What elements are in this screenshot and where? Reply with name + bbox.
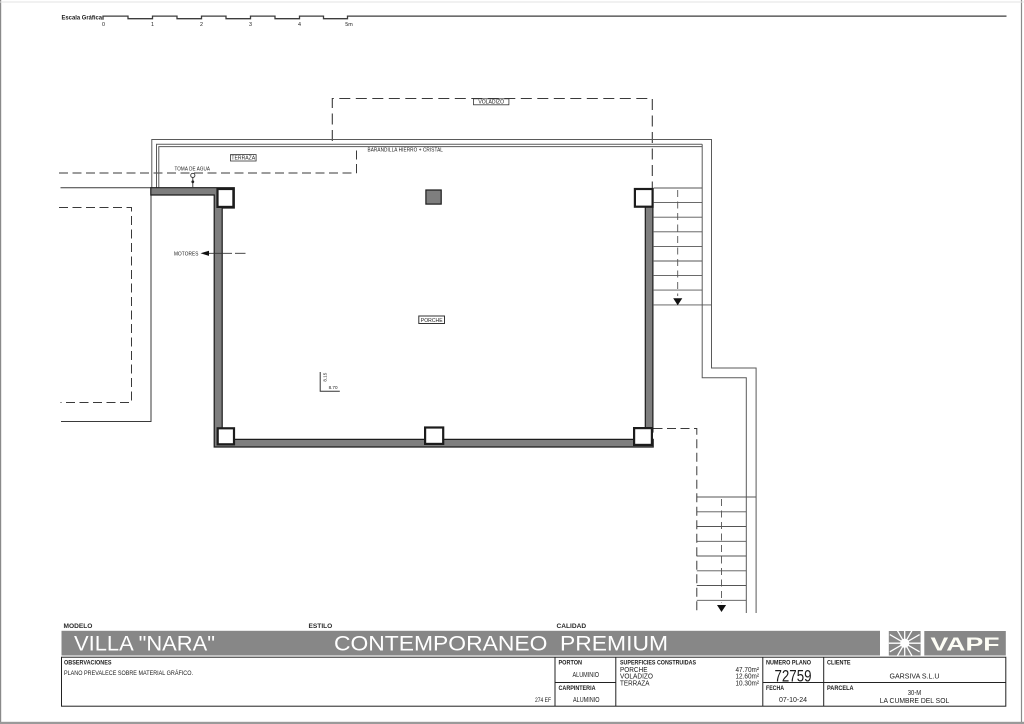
svg-text:NUMERO PLANO: NUMERO PLANO bbox=[766, 660, 811, 667]
svg-text:8.15: 8.15 bbox=[322, 372, 327, 381]
svg-text:72759: 72759 bbox=[775, 668, 812, 686]
svg-text:ESTILO: ESTILO bbox=[309, 623, 333, 630]
svg-text:BARANDILLA HIERRO + CRISTAL: BARANDILLA HIERRO + CRISTAL bbox=[368, 147, 444, 153]
svg-text:TOMA DE AGUA: TOMA DE AGUA bbox=[175, 166, 211, 172]
svg-text:GARSIVA S.L.U: GARSIVA S.L.U bbox=[890, 672, 940, 681]
svg-text:FECHA: FECHA bbox=[766, 685, 784, 692]
svg-text:PORCHE: PORCHE bbox=[421, 318, 443, 324]
svg-text:4: 4 bbox=[298, 22, 301, 28]
svg-text:1: 1 bbox=[151, 22, 154, 28]
svg-text:MOTORES: MOTORES bbox=[174, 252, 199, 258]
svg-text:LA CUMBRE DEL SOL: LA CUMBRE DEL SOL bbox=[880, 696, 950, 705]
svg-text:5m: 5m bbox=[345, 22, 353, 28]
svg-text:PORTON: PORTON bbox=[559, 660, 583, 667]
svg-text:07-10-24: 07-10-24 bbox=[779, 695, 807, 704]
svg-text:CONTEMPORANEO PREMIUM: CONTEMPORANEO PREMIUM bbox=[334, 632, 668, 656]
svg-text:OBSERVACIONES: OBSERVACIONES bbox=[64, 660, 112, 667]
svg-text:ALUMINIO: ALUMINIO bbox=[573, 695, 600, 704]
svg-text:0: 0 bbox=[102, 22, 105, 28]
svg-text:MODELO: MODELO bbox=[64, 623, 93, 630]
svg-text:3: 3 bbox=[249, 22, 252, 28]
svg-text:VOLADIZO: VOLADIZO bbox=[478, 100, 504, 106]
svg-text:8.70: 8.70 bbox=[329, 385, 338, 390]
svg-text:2: 2 bbox=[200, 22, 203, 28]
svg-text:10.30m²: 10.30m² bbox=[736, 678, 760, 687]
svg-text:CALIDAD: CALIDAD bbox=[557, 623, 587, 630]
svg-text:TERRAZA: TERRAZA bbox=[231, 156, 255, 162]
svg-text:VILLA "NARA": VILLA "NARA" bbox=[74, 632, 215, 656]
svg-text:CARPINTERIA: CARPINTERIA bbox=[559, 685, 596, 692]
svg-text:PARCELA: PARCELA bbox=[827, 685, 854, 692]
svg-text:274 EF: 274 EF bbox=[535, 697, 551, 704]
svg-text:ALUMINIO: ALUMINIO bbox=[573, 670, 600, 679]
svg-text:CLIENTE: CLIENTE bbox=[827, 660, 851, 667]
svg-text:VAPF: VAPF bbox=[931, 634, 1000, 655]
svg-text:TERRAZA: TERRAZA bbox=[620, 678, 650, 687]
svg-text:PLANO PREVALECE SOBRE MATERIAL: PLANO PREVALECE SOBRE MATERIAL GRÁFICO. bbox=[64, 670, 193, 677]
svg-text:Escala Gráfica: Escala Gráfica bbox=[62, 16, 103, 22]
